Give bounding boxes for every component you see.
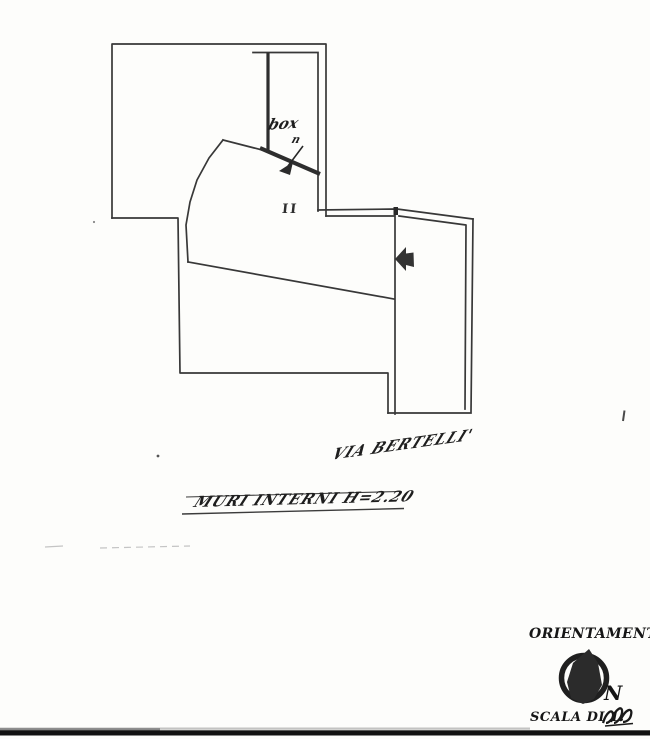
- scan-bottom-bar: [0, 728, 650, 736]
- wall-interior-diagonal: [188, 262, 394, 299]
- box-annotation-arrowhead: [279, 162, 293, 175]
- room-mark: II: [281, 202, 299, 217]
- wall-right-block-outer: [388, 219, 473, 413]
- wall-right-block-inner: [399, 216, 466, 409]
- compass-rose: [562, 649, 607, 704]
- scanned-floor-plan-sheet: box n II VIA BERTELLI' MURI INTERNI H=2.…: [0, 0, 650, 739]
- scan-speck: [157, 455, 160, 458]
- scan-tick-mark: [623, 411, 625, 422]
- orientation-title: ORIENTAMENTO: [529, 626, 650, 642]
- faint-pencil-dashes: [45, 546, 190, 548]
- wall-lower-block: [112, 218, 388, 413]
- compass-north-label: N: [604, 681, 622, 705]
- scan-speck: [93, 221, 95, 223]
- wall-junction-mark: [394, 207, 399, 215]
- scale-label: SCALA DI 1.: [530, 710, 625, 725]
- wall-curved-edge: [186, 140, 223, 262]
- box-label: box: [266, 114, 301, 134]
- entrance-arrow: [395, 247, 414, 271]
